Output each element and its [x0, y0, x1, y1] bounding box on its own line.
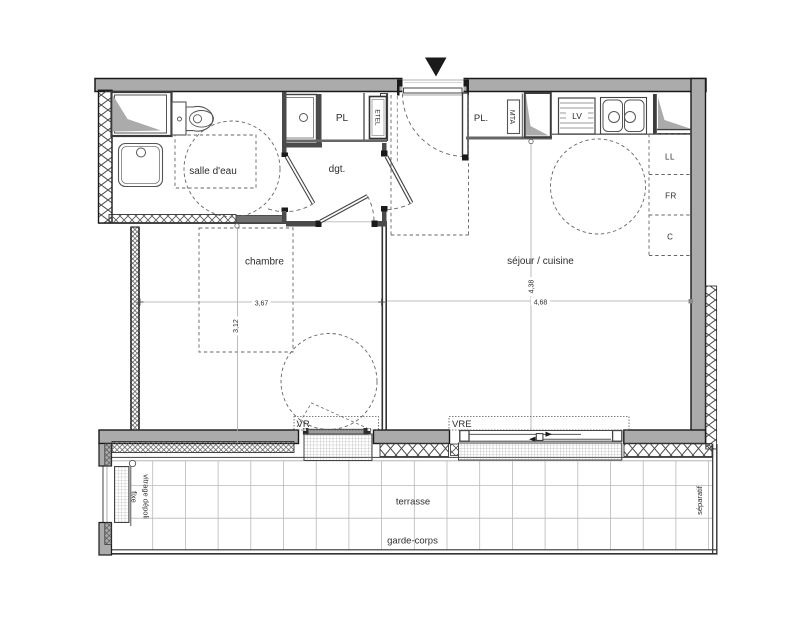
svg-text:4,68: 4,68	[534, 300, 548, 307]
svg-text:FR: FR	[665, 192, 677, 201]
svg-text:vitrage dépoli: vitrage dépoli	[142, 474, 151, 519]
svg-text:séjour / cuisine: séjour / cuisine	[507, 256, 574, 267]
svg-text:ETEL: ETEL	[374, 109, 381, 126]
svg-text:3,12: 3,12	[233, 319, 240, 333]
svg-text:séparatif: séparatif	[695, 485, 704, 515]
svg-text:salle d'eau: salle d'eau	[189, 166, 237, 177]
svg-text:MTA: MTA	[508, 110, 515, 125]
svg-text:fixe: fixe	[130, 491, 139, 503]
svg-text:LV: LV	[572, 111, 582, 121]
svg-text:VRE: VRE	[452, 419, 472, 430]
svg-text:3,67: 3,67	[255, 301, 269, 308]
svg-text:PL: PL	[336, 113, 349, 124]
svg-text:PL.: PL.	[474, 113, 488, 124]
svg-text:chambre: chambre	[245, 257, 284, 268]
svg-text:garde-corps: garde-corps	[387, 536, 438, 547]
svg-text:C: C	[667, 233, 673, 242]
svg-text:4,38: 4,38	[529, 280, 536, 294]
svg-text:terrasse: terrasse	[396, 497, 430, 508]
svg-text:LL: LL	[665, 153, 675, 162]
svg-text:dgt.: dgt.	[329, 164, 346, 175]
